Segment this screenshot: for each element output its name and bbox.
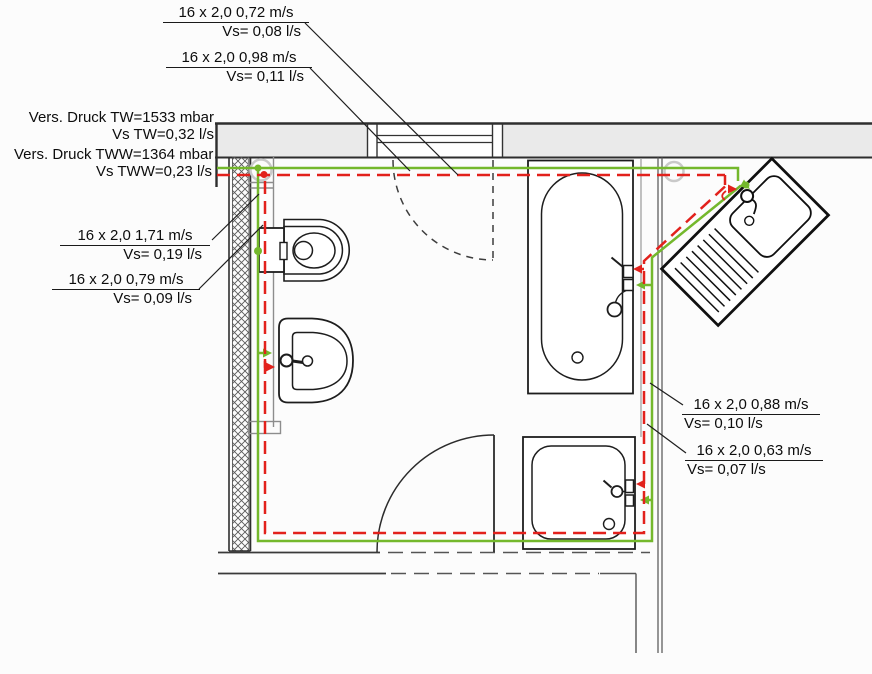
left-wall-hatch (229, 157, 251, 551)
fixtures (259, 159, 828, 549)
flow-rate-text: Vs= 0,11 l/s (166, 68, 312, 85)
flow-rate-text: Vs= 0,07 l/s (685, 461, 823, 478)
toilet (259, 220, 349, 282)
floor-plan-page: 16 x 2,0 0,72 m/s Vs= 0,08 l/s 16 x 2,0 … (0, 0, 872, 674)
label-flow-right-2: 16 x 2,0 0,63 m/s Vs= 0,07 l/s (685, 442, 823, 478)
pipe-sleeve (251, 160, 272, 181)
flow-rate-text: Vs= 0,10 l/s (682, 415, 820, 432)
flow-rate-text: Vs= 0,09 l/s (52, 290, 200, 307)
flow-rate-text: Vs= 0,19 l/s (60, 246, 210, 263)
label-flow-top-1: 16 x 2,0 0,72 m/s Vs= 0,08 l/s (163, 4, 309, 40)
label-supply-tww: Vers. Druck TWW=1364 mbar Vs TWW=0,23 l/… (14, 146, 212, 180)
pipe-spec-text: 16 x 2,0 0,88 m/s (682, 396, 820, 415)
shower-drain-icon (604, 519, 615, 530)
pipe-spec-text: 16 x 2,0 0,79 m/s (52, 271, 200, 290)
label-flow-right-1: 16 x 2,0 0,88 m/s Vs= 0,10 l/s (682, 396, 820, 432)
label-flow-top-2: 16 x 2,0 0,98 m/s Vs= 0,11 l/s (166, 49, 312, 85)
supply-pressure-text: Vers. Druck TWW=1364 mbar (14, 146, 212, 163)
pipe-sleeve (665, 162, 684, 181)
label-flow-left-2: 16 x 2,0 0,79 m/s Vs= 0,09 l/s (52, 271, 200, 307)
top-wall (215, 125, 872, 157)
supply-pressure-text: Vers. Druck TW=1533 mbar (23, 109, 214, 126)
washbasin (279, 319, 353, 403)
flow-rate-text: Vs= 0,08 l/s (163, 23, 309, 40)
leader-flow-right-1 (650, 383, 683, 405)
bathtub (528, 161, 633, 394)
pipe-spec-text: 16 x 2,0 0,63 m/s (685, 442, 823, 461)
label-flow-left-1: 16 x 2,0 1,71 m/s Vs= 0,19 l/s (60, 227, 210, 263)
floor-plan-drawing (0, 0, 872, 674)
pipe-spec-text: 16 x 2,0 1,71 m/s (60, 227, 210, 246)
pipe-spec-text: 16 x 2,0 0,72 m/s (163, 4, 309, 23)
pipe-spec-text: 16 x 2,0 0,98 m/s (166, 49, 312, 68)
supply-flow-text: Vs TW=0,32 l/s (23, 126, 214, 143)
supply-flow-text: Vs TWW=0,23 l/s (14, 163, 212, 180)
door-swing (377, 435, 494, 552)
bottom-wall (218, 553, 650, 654)
washbasin-drain-icon (303, 356, 313, 366)
label-supply-tw: Vers. Druck TW=1533 mbar Vs TW=0,32 l/s (23, 109, 214, 143)
bathtub-drain-icon (572, 352, 583, 363)
